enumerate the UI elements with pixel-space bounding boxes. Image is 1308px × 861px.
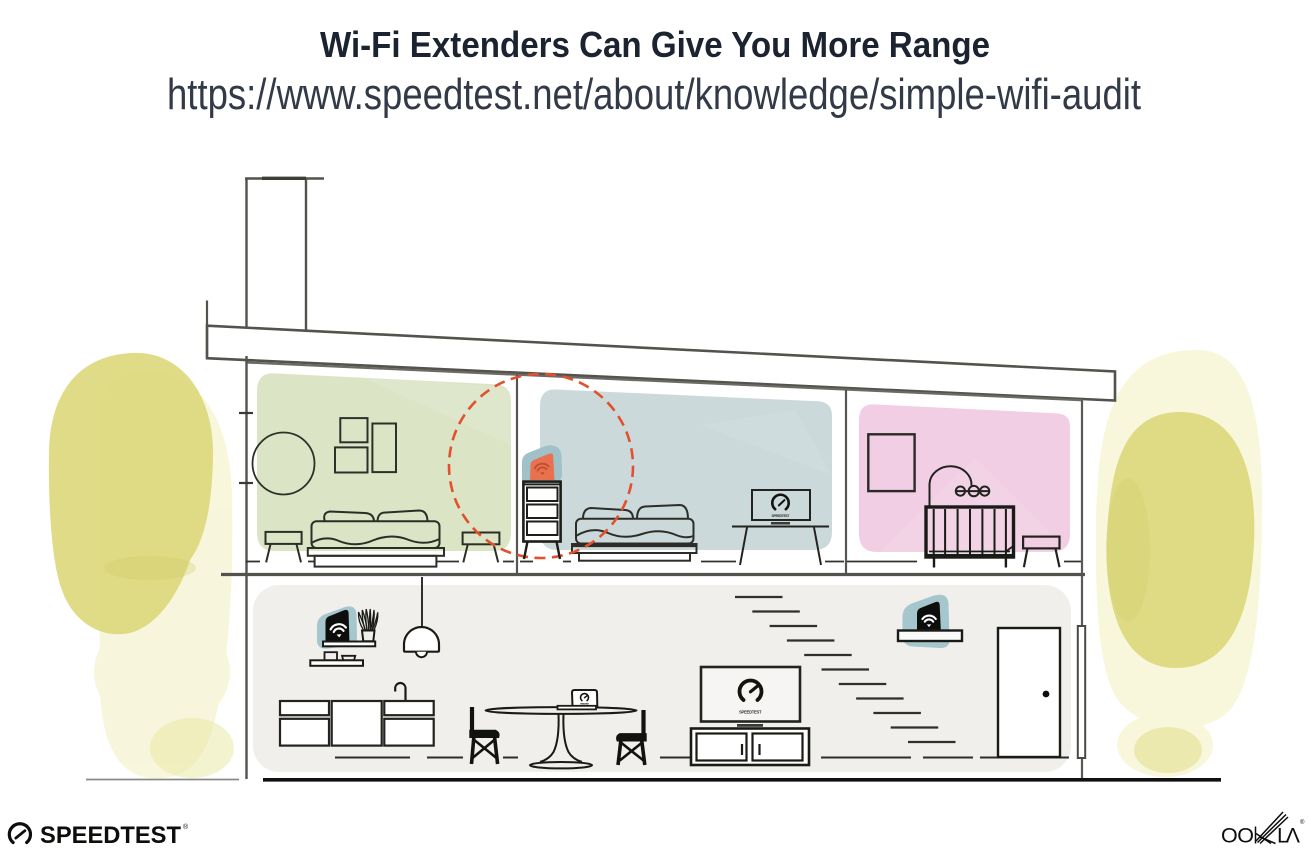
svg-text:LΛ: LΛ [1277, 824, 1301, 848]
svg-text:SPEEDTEST: SPEEDTEST [772, 514, 791, 518]
svg-text:SPEEDTEST: SPEEDTEST [40, 822, 181, 849]
svg-text:SPEEDTEST: SPEEDTEST [739, 710, 762, 715]
svg-text:®: ® [183, 823, 189, 831]
svg-text:Wi-Fi Extenders Can Give You M: Wi-Fi Extenders Can Give You More Range [320, 24, 990, 65]
svg-text:®: ® [1300, 819, 1305, 826]
svg-text:OO: OO [1221, 824, 1254, 848]
svg-text:https://www.speedtest.net/abou: https://www.speedtest.net/about/knowledg… [167, 71, 1141, 119]
